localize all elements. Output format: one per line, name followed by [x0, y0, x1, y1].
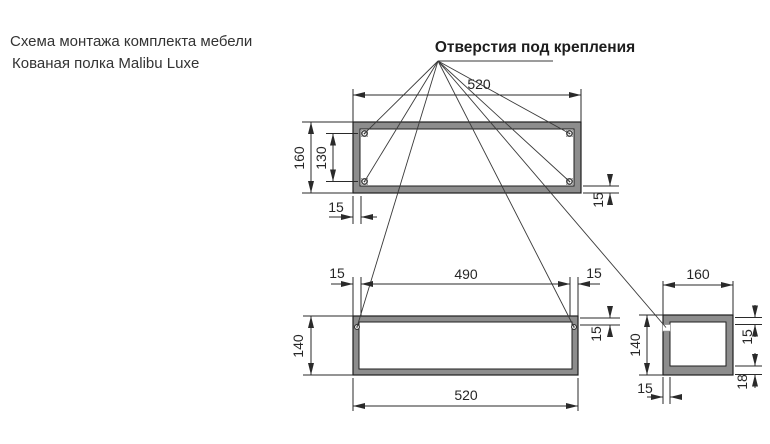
dim-label-160-side: 160: [686, 266, 710, 282]
diagram-svg: Схема монтажа комплекта мебели Кованая п…: [0, 0, 770, 444]
dim-label-140-side: 140: [627, 333, 643, 357]
dim-side-height: 140: [627, 315, 663, 375]
top-view-inner: [360, 129, 574, 186]
dim-top-width: 520: [353, 76, 581, 122]
dim-side-bottom-profile: 18: [734, 353, 762, 390]
dim-top-hole-offset: 15: [328, 196, 377, 224]
hole-leader-lines: [357, 61, 666, 328]
dim-top-hole-spacing: 130: [313, 134, 358, 182]
side-view: [663, 315, 733, 375]
front-view-inner: [359, 322, 572, 369]
dim-label-15-front-left: 15: [329, 265, 345, 281]
dim-side-width: 160: [663, 266, 733, 315]
doc-title-line1: Схема монтажа комплекта мебели: [10, 33, 252, 50]
dim-label-18-side-bottom: 18: [734, 374, 750, 390]
assembly-diagram: Схема монтажа комплекта мебели Кованая п…: [0, 0, 770, 444]
dim-label-15-side-top: 15: [739, 329, 755, 345]
dim-label-15-front-right: 15: [586, 265, 602, 281]
top-view: [353, 122, 581, 193]
dim-label-520-bottom: 520: [454, 387, 478, 403]
dim-front-height: 140: [290, 316, 353, 375]
dim-label-15-front-profile: 15: [588, 326, 604, 342]
dim-label-160-top: 160: [291, 146, 307, 170]
dim-label-15-top-right: 15: [590, 192, 606, 208]
dim-label-15-top-left: 15: [328, 199, 344, 215]
doc-title-line2: Кованая полка Malibu Luxe: [12, 55, 199, 72]
side-view-inner: [670, 322, 726, 366]
dim-top-profile: 15: [583, 174, 619, 208]
dim-front-hole-span: 490 15 15: [329, 265, 602, 316]
dim-label-520-top: 520: [467, 76, 491, 92]
callout-title: Отверстия под крепления: [435, 39, 635, 56]
dim-label-130: 130: [313, 146, 329, 170]
dim-side-top-profile: 15: [735, 305, 762, 345]
dim-side-hole-offset: 15: [637, 377, 681, 404]
dim-label-140-front: 140: [290, 334, 306, 358]
front-view: [353, 316, 578, 375]
dim-front-profile: 15: [580, 306, 620, 342]
dim-label-15-side-left: 15: [637, 380, 653, 396]
dim-label-490: 490: [454, 266, 478, 282]
header: Схема монтажа комплекта мебели Кованая п…: [10, 33, 252, 72]
dim-front-width: 520: [353, 378, 578, 411]
